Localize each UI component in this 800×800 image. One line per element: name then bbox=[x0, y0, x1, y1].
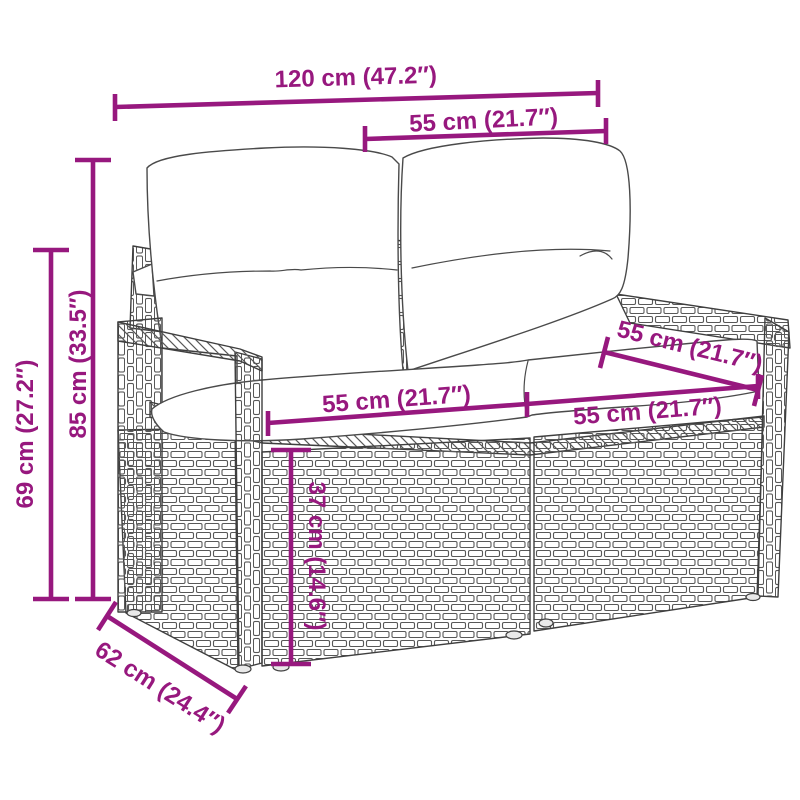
dim-label-total-width: 120 cm (47.2″) bbox=[274, 62, 437, 94]
sofa-foot bbox=[235, 665, 251, 673]
product-dimension-diagram: 120 cm (47.2″) 55 cm (21.7″) 85 cm (33.5… bbox=[0, 0, 800, 800]
sofa-foot bbox=[539, 619, 553, 627]
left-armrest-outer-post bbox=[118, 318, 162, 612]
front-left-corner-post bbox=[235, 352, 262, 669]
dim-label-total-height: 85 cm (33.5″) bbox=[65, 290, 92, 439]
diagram-canvas: 120 cm (47.2″) 55 cm (21.7″) 85 cm (33.5… bbox=[0, 0, 800, 800]
dim-label-armrest-height: 69 cm (27.2″) bbox=[12, 360, 39, 509]
front-panel-left-seat bbox=[262, 438, 530, 666]
sofa-foot bbox=[127, 610, 141, 617]
front-panel-right-seat bbox=[534, 417, 763, 631]
dim-label-seat-height: 37 cm (14.6″) bbox=[303, 482, 330, 631]
sofa-foot bbox=[746, 594, 760, 601]
sofa-foot bbox=[506, 631, 522, 639]
